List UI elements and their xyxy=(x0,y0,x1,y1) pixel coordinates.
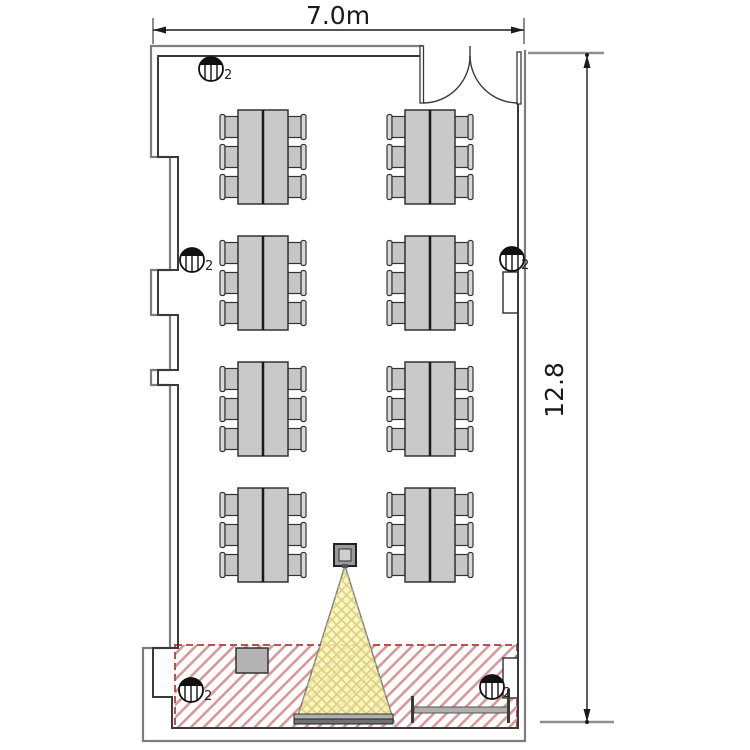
height-dimension-label: 12.8 xyxy=(540,362,569,418)
wall-pilaster-mid xyxy=(503,272,518,313)
width-dimension: 7.0m xyxy=(153,1,524,44)
table-group-3 xyxy=(220,236,306,330)
floor-plan: 2 2 2 2 2 7.0m xyxy=(0,0,750,750)
fixture-count-label: 2 xyxy=(224,68,232,83)
entrance-door xyxy=(420,46,521,104)
podium xyxy=(236,648,268,673)
door-swing-right xyxy=(470,56,518,103)
height-dimension: 12.8 xyxy=(528,53,614,724)
door-swing-left xyxy=(423,56,470,103)
fixture-count-label: 2 xyxy=(205,259,213,274)
table-group-1 xyxy=(220,110,306,204)
table-group-2 xyxy=(387,110,473,204)
tables-grid xyxy=(220,110,473,582)
table-group-7 xyxy=(220,488,306,582)
table-group-4 xyxy=(387,236,473,330)
fixture-count-label: 2 xyxy=(521,258,529,273)
table-group-8 xyxy=(387,488,473,582)
table-group-6 xyxy=(387,362,473,456)
door-leaf-right xyxy=(517,52,521,104)
projector xyxy=(334,544,356,568)
fixture-count-label: 2 xyxy=(204,689,212,704)
width-dimension-label: 7.0m xyxy=(306,1,370,30)
door-jamb-left xyxy=(420,46,424,103)
floor-plan-canvas: 2 2 2 2 2 7.0m xyxy=(0,0,750,750)
projection-screen xyxy=(294,714,393,724)
ceiling-light-icon: 2 xyxy=(199,57,232,83)
ceiling-light-icon: 2 xyxy=(180,248,213,274)
table-group-5 xyxy=(220,362,306,456)
fixture-count-label: 2 xyxy=(503,686,511,701)
